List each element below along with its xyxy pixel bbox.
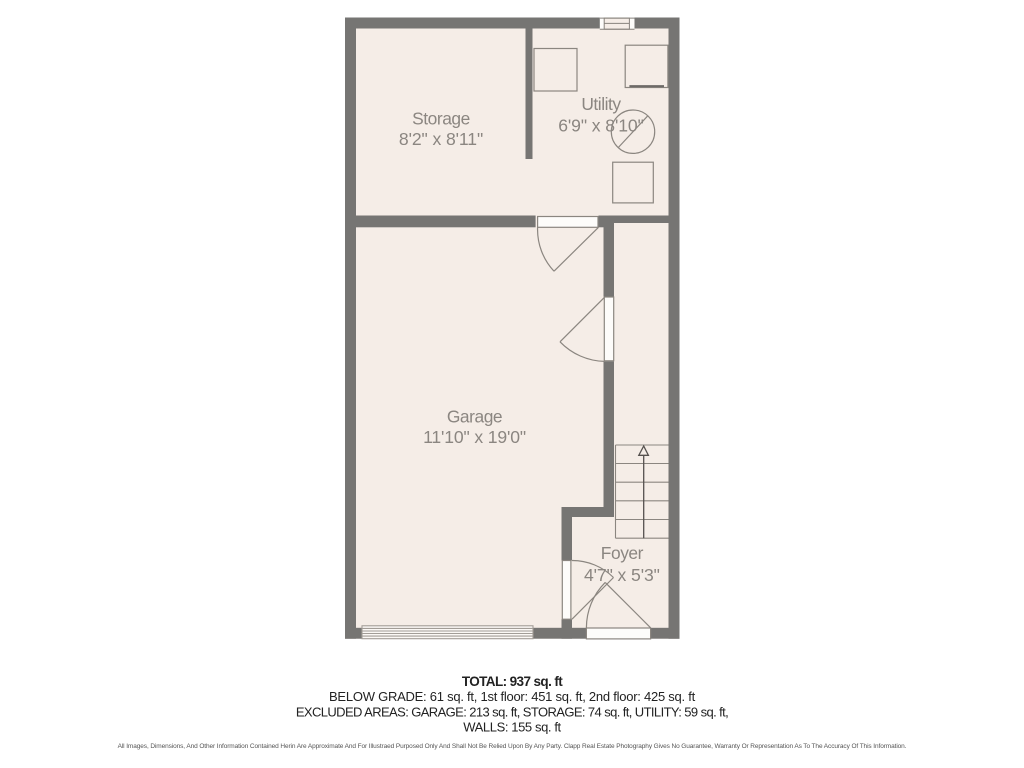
svg-text:BELOW GRADE: 61 sq. ft, 1st fl: BELOW GRADE: 61 sq. ft, 1st floor: 451 s… — [329, 689, 696, 704]
svg-text:Storage: Storage — [412, 109, 470, 129]
svg-text:WALLS: 155 sq. ft: WALLS: 155 sq. ft — [463, 720, 561, 735]
svg-text:All Images, Dimensions, And Ot: All Images, Dimensions, And Other Inform… — [118, 743, 907, 750]
svg-text:6'9" x 8'10": 6'9" x 8'10" — [558, 115, 644, 135]
svg-text:EXCLUDED AREAS: GARAGE: 213 sq: EXCLUDED AREAS: GARAGE: 213 sq. ft, STOR… — [296, 705, 728, 720]
svg-text:Foyer: Foyer — [601, 543, 644, 563]
svg-text:Utility: Utility — [581, 94, 621, 114]
svg-text:4'7" x 5'3": 4'7" x 5'3" — [584, 565, 660, 585]
svg-text:TOTAL: 937 sq. ft: TOTAL: 937 sq. ft — [462, 674, 563, 689]
svg-text:11'10" x 19'0": 11'10" x 19'0" — [423, 427, 526, 447]
svg-text:8'2" x 8'11": 8'2" x 8'11" — [399, 129, 483, 149]
svg-text:Garage: Garage — [447, 406, 502, 426]
